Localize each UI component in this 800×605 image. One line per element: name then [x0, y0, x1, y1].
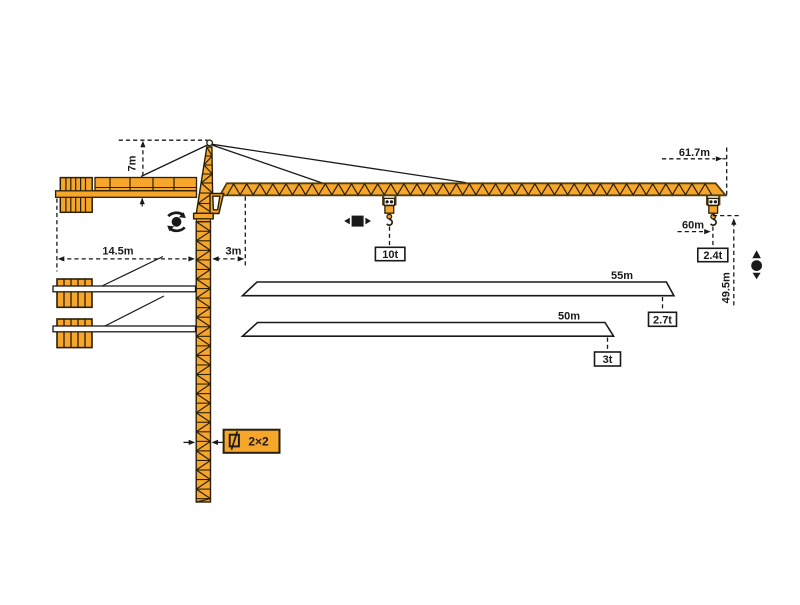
svg-text:2×2: 2×2 — [248, 435, 269, 449]
svg-text:14.5m: 14.5m — [102, 246, 133, 258]
svg-text:7m: 7m — [127, 155, 139, 171]
svg-text:3t: 3t — [603, 354, 613, 366]
svg-text:3m: 3m — [226, 246, 242, 258]
svg-text:60m: 60m — [682, 219, 704, 231]
svg-text:10t: 10t — [382, 249, 398, 261]
svg-text:49.5m: 49.5m — [721, 272, 733, 303]
svg-text:2.7t: 2.7t — [653, 314, 672, 326]
svg-text:50m: 50m — [558, 311, 580, 323]
svg-text:55m: 55m — [611, 270, 633, 282]
svg-text:2.4t: 2.4t — [703, 250, 722, 262]
svg-text:61.7m: 61.7m — [679, 147, 710, 159]
